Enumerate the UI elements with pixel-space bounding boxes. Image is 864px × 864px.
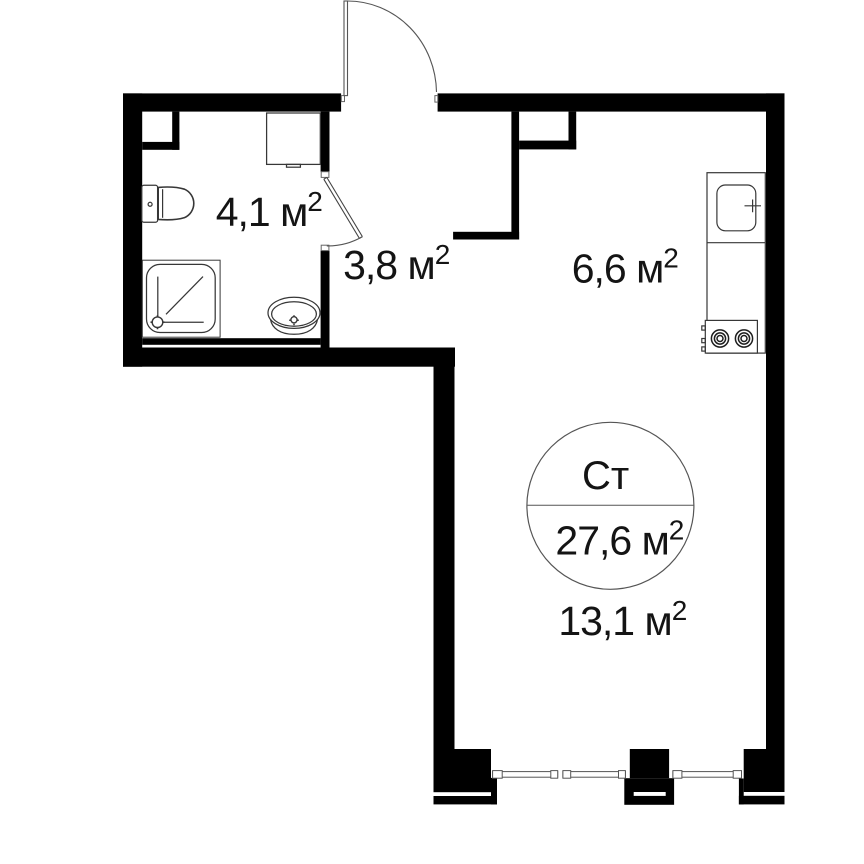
svg-text:3,8 м2: 3,8 м2 [343, 239, 450, 288]
svg-text:6,6 м2: 6,6 м2 [572, 242, 679, 291]
svg-text:Ст: Ст [582, 454, 629, 498]
svg-text:27,6 м2: 27,6 м2 [555, 514, 683, 563]
svg-text:13,1 м2: 13,1 м2 [558, 595, 686, 644]
svg-text:4,1 м2: 4,1 м2 [216, 186, 323, 235]
